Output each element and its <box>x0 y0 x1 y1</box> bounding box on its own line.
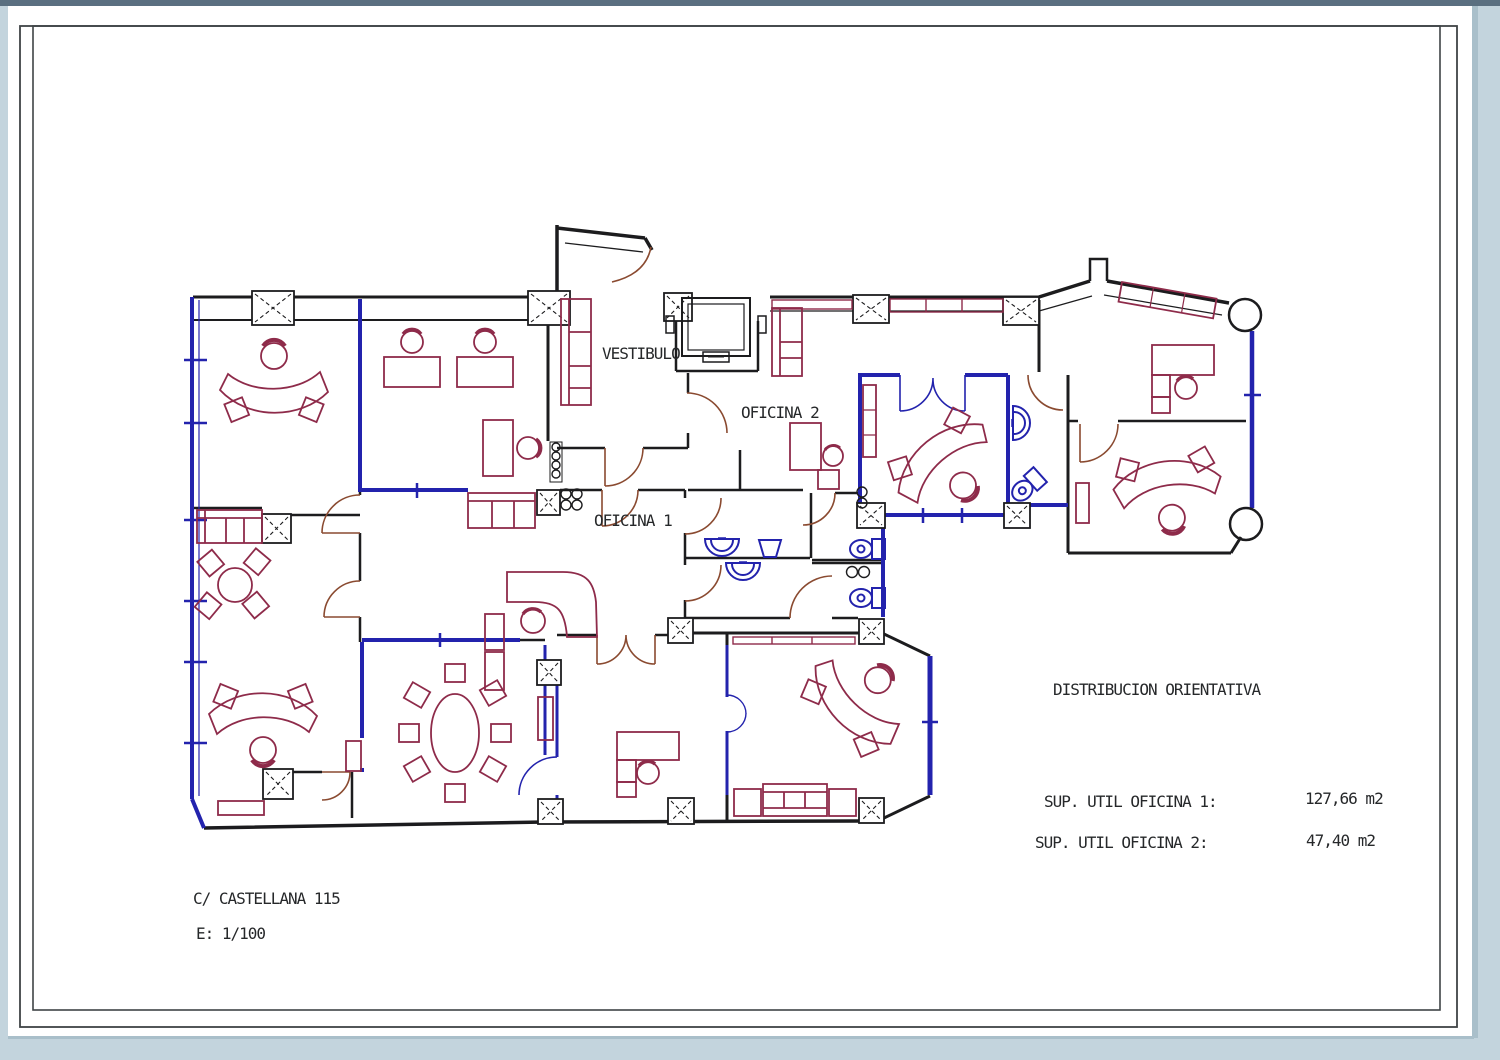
label-oficina2: OFICINA 2 <box>741 403 819 422</box>
paper-sheet <box>8 6 1474 1038</box>
value-sup1: 127,66 m2 <box>1305 789 1383 808</box>
label-sup2: SUP. UTIL OFICINA 2: <box>1035 833 1208 852</box>
scanner-edge-band <box>0 0 1500 6</box>
value-sup2: 47,40 m2 <box>1306 831 1375 850</box>
label-sup1: SUP. UTIL OFICINA 1: <box>1044 792 1217 811</box>
scanned-floor-plan-page: VESTIBULO OFICINA 2 OFICINA 1 DISTRIBUCI… <box>0 0 1500 1060</box>
label-address: C/ CASTELLANA 115 <box>193 889 340 908</box>
label-oficina1: OFICINA 1 <box>594 511 672 530</box>
floor-plan-drawing: VESTIBULO OFICINA 2 OFICINA 1 DISTRIBUCI… <box>0 0 1500 1060</box>
label-distribucion: DISTRIBUCION ORIENTATIVA <box>1053 680 1262 699</box>
label-vestibulo: VESTIBULO <box>602 344 680 363</box>
label-scale: E: 1/100 <box>196 924 265 943</box>
